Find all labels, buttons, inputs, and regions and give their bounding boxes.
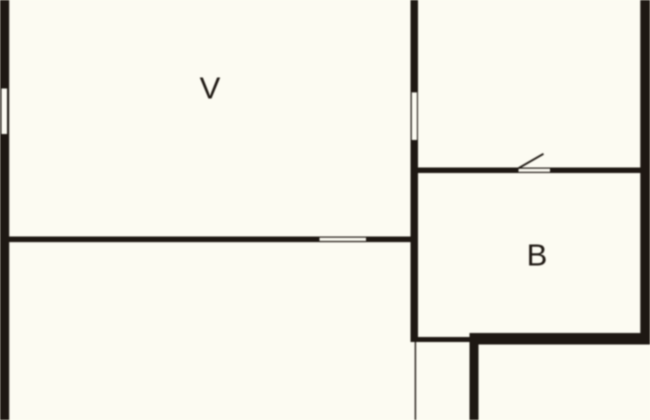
svg-text:B: B <box>527 238 548 273</box>
svg-text:V: V <box>200 71 221 106</box>
